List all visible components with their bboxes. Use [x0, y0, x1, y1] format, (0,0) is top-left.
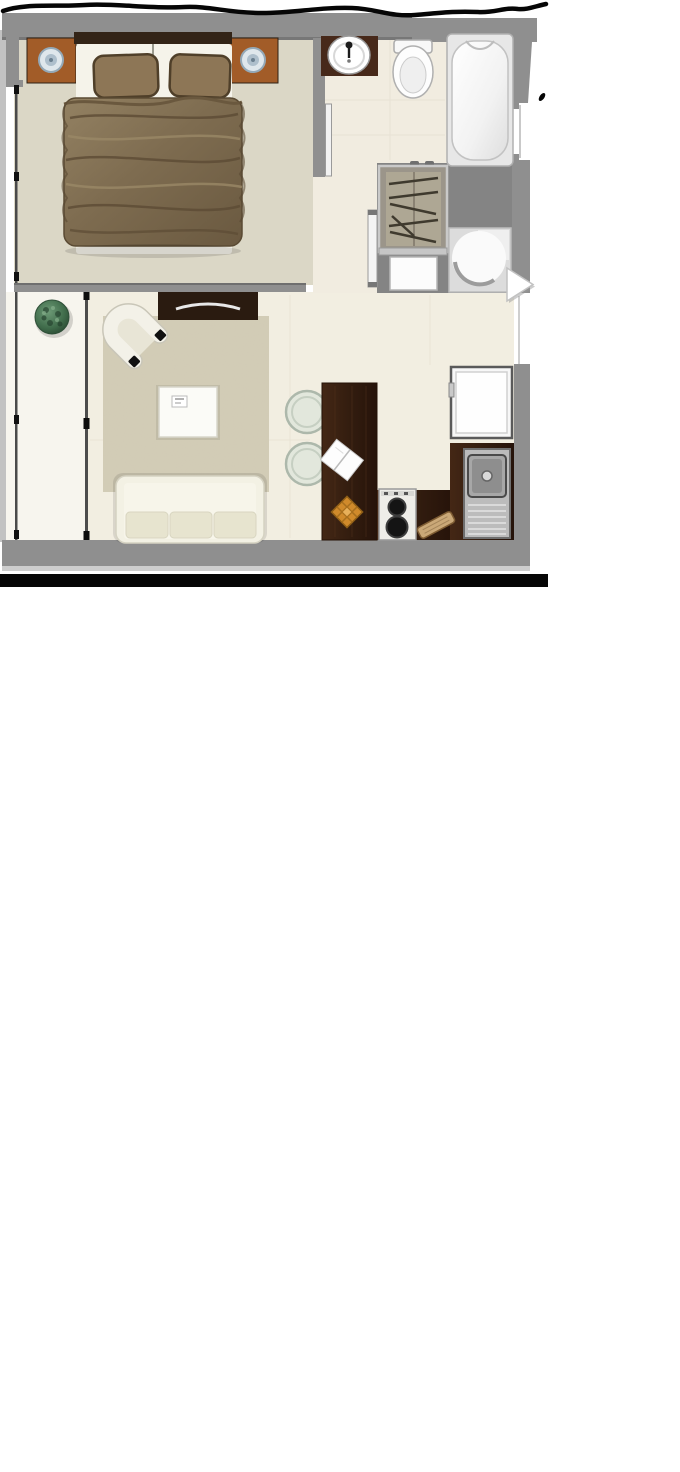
fridge-handle: [449, 383, 454, 397]
left-wall-upper: [6, 30, 19, 80]
sink-drain: [482, 471, 492, 481]
comma-mark: [537, 92, 546, 102]
sofa-cushion: [126, 512, 168, 538]
bottom-wall: [2, 540, 530, 566]
pillow-right: [169, 54, 230, 98]
burner: [387, 517, 408, 538]
blanket: [63, 98, 245, 246]
refrigerator: [449, 367, 512, 438]
right-wall-upper: [512, 42, 532, 103]
bottom-wall-edge: [2, 566, 530, 571]
pillow-left: [93, 54, 158, 98]
double-bed: [63, 32, 245, 258]
sofa-cushion: [170, 512, 212, 538]
nightstand-right: [229, 38, 278, 83]
potted-plant: [35, 300, 69, 334]
left-outer-window-frame: [0, 30, 6, 542]
bedroom: [27, 32, 278, 258]
divider-edge: [14, 283, 306, 285]
hall-door-leaf: [368, 210, 377, 287]
washing-machine: [449, 228, 511, 292]
cooktop: [379, 489, 416, 540]
bedside-lamp-left: [39, 48, 63, 72]
remote-control: [172, 396, 187, 407]
coffee-table: [156, 385, 220, 440]
bathtub: [447, 34, 513, 166]
bathroom-window: [512, 103, 528, 160]
bathroom-sink: [328, 36, 370, 74]
burner: [389, 499, 406, 516]
floor-plan-canvas: [0, 0, 680, 600]
bedside-lamp-right: [241, 48, 265, 72]
headboard: [74, 32, 232, 44]
sofa: [113, 473, 267, 543]
tv-console: [158, 292, 258, 320]
right-wall-lower: [514, 364, 530, 540]
bottom-black-bar: [0, 574, 548, 587]
laundry-appliance: [390, 257, 437, 290]
kitchen-window: [518, 296, 520, 364]
sofa-cushion: [214, 512, 256, 538]
nightstand-left: [27, 38, 76, 83]
toilet: [393, 40, 433, 98]
bathroom-door-leaf: [326, 104, 332, 176]
kitchen-sink: [464, 449, 510, 538]
floor-plan-page: [0, 0, 680, 1472]
bed-shadow: [65, 244, 241, 258]
